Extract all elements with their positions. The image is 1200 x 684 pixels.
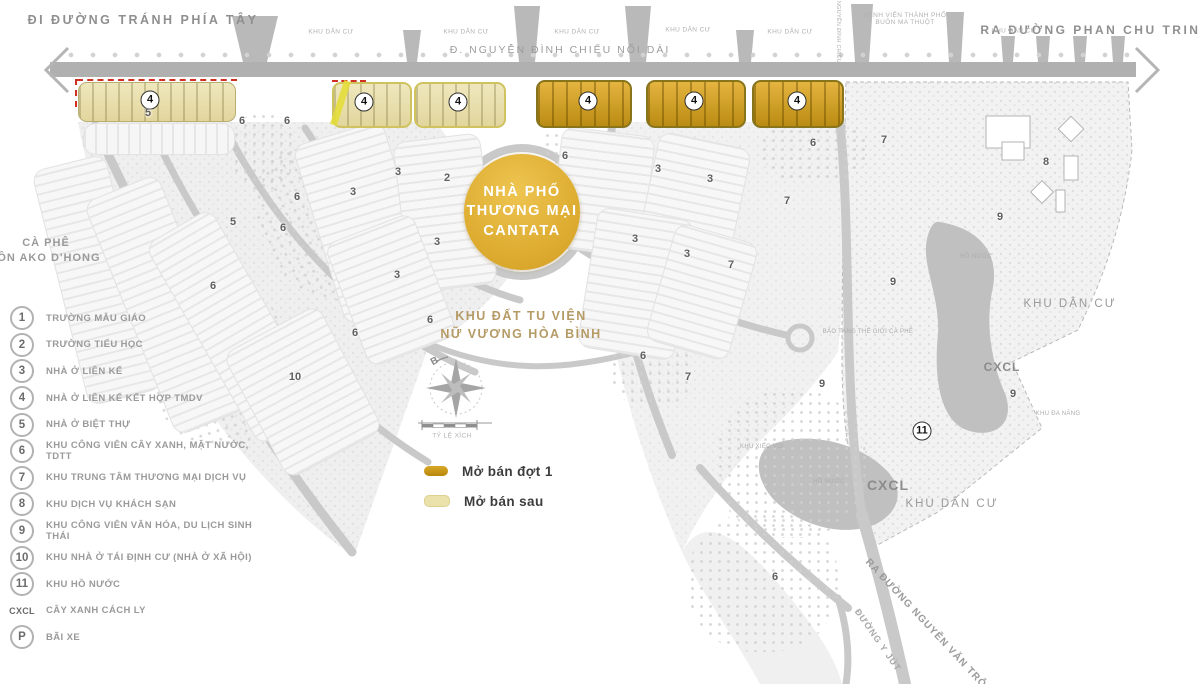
scale-bar	[418, 420, 492, 430]
legend-label: NHÀ Ở LIÊN KẾ	[46, 366, 123, 377]
residential-area-label: KHU DÂN CƯ	[443, 29, 488, 36]
zone-number-6: 6	[284, 115, 290, 127]
legend-label: KHU NHÀ Ở TÁI ĐỊNH CƯ (NHÀ Ở XÃ HỘI)	[46, 552, 252, 563]
zone-number-8: 8	[1043, 156, 1049, 168]
master-plan-map: 4444441156666782333367956333793666671099…	[0, 0, 1200, 684]
project-name-line2: THƯƠNG MẠI	[466, 202, 577, 222]
road-label-west: ĐI ĐƯỜNG TRÁNH PHÍA TÂY	[28, 13, 259, 27]
zone-number-11: 11	[913, 422, 932, 441]
legend-label: NHÀ Ở LIÊN KẾ KẾT HỢP TMDV	[46, 393, 203, 404]
legend-item-6: 6KHU CÔNG VIÊN CÂY XANH, MẶT NƯỚC, TDTT	[10, 438, 270, 465]
hospital-label-line1: BỆNH VIỆN THÀNH PHỐ	[864, 12, 947, 19]
legend-item-9: 9KHU CÔNG VIÊN VĂN HÓA, DU LỊCH SINH THÁ…	[10, 518, 270, 545]
zone-number-3: 3	[394, 269, 400, 281]
legend-badge-CXCL: CXCL	[10, 601, 34, 621]
hospital-label-line2: BUÔN MA THUỘT	[864, 19, 947, 26]
tree-cluster	[688, 512, 838, 652]
legend-item-7: 7KHU TRUNG TÂM THƯƠNG MẠI DỊCH VỤ	[10, 465, 270, 492]
phase2-swatch	[424, 495, 450, 507]
zone-number-3: 3	[350, 186, 356, 198]
yellow-marker	[330, 80, 351, 126]
convent-label-line2: NỮ VƯƠNG HÒA BÌNH	[440, 327, 601, 341]
zone-number-3: 3	[684, 248, 690, 260]
zone-number-7: 7	[881, 134, 887, 146]
legend-item-1: 1TRƯỜNG MẪU GIÁO	[10, 305, 270, 332]
legend-label: TRƯỜNG TIỂU HỌC	[46, 339, 143, 350]
zone-number-3: 3	[395, 166, 401, 178]
legend-label: NHÀ Ở BIỆT THỰ	[46, 419, 130, 430]
legend-label: KHU TRUNG TÂM THƯƠNG MẠI DỊCH VỤ	[46, 472, 246, 483]
zone-number-4: 4	[685, 92, 704, 111]
zone-number-7: 7	[784, 195, 790, 207]
east-arrow-icon	[1136, 48, 1158, 92]
legend-label: TRƯỜNG MẪU GIÁO	[46, 313, 146, 324]
scale-caption: TỶ LỆ XÍCH	[432, 433, 471, 440]
phase1-swatch	[424, 466, 448, 476]
legend-badge-1: 1	[10, 306, 34, 330]
lake-label: HỒ NƯỚC	[813, 479, 845, 485]
zone-number-6: 6	[562, 150, 568, 162]
project-circle: NHÀ PHỐ THƯƠNG MẠI CANTATA	[464, 154, 580, 270]
legend-item-10: 10KHU NHÀ Ở TÁI ĐỊNH CƯ (NHÀ Ở XÃ HỘI)	[10, 544, 270, 571]
legend-badge-10: 10	[10, 546, 34, 570]
legend-item-4: 4NHÀ Ở LIÊN KẾ KẾT HỢP TMDV	[10, 385, 270, 412]
zone-number-9: 9	[890, 276, 896, 288]
legend-item-CXCL: CXCLCÂY XANH CÁCH LY	[10, 598, 270, 625]
zone-number-6: 6	[280, 222, 286, 234]
legend-badge-2: 2	[10, 333, 34, 357]
zone-number-2: 2	[444, 172, 450, 184]
legend-badge-8: 8	[10, 492, 34, 516]
legend-item-8: 8KHU DỊCH VỤ KHÁCH SẠN	[10, 491, 270, 518]
legend-badge-5: 5	[10, 413, 34, 437]
legend-label: BÃI XE	[46, 632, 80, 643]
boundary-dash-red	[77, 79, 237, 81]
legend-item-3: 3NHÀ Ở LIÊN KẾ	[10, 358, 270, 385]
zone-number-4: 4	[355, 93, 374, 112]
legend-label: KHU DỊCH VỤ KHÁCH SẠN	[46, 499, 176, 510]
legend-item-5: 5NHÀ Ở BIỆT THỰ	[10, 411, 270, 438]
legend-label: CÂY XANH CÁCH LY	[46, 605, 146, 616]
zone-number-6: 6	[640, 350, 646, 362]
legend-badge-9: 9	[10, 519, 34, 543]
zone-number-9: 9	[1010, 388, 1016, 400]
residential-block	[84, 124, 234, 154]
cxcl-label: CXCL	[984, 360, 1021, 374]
zone-number-9: 9	[819, 378, 825, 390]
zone-number-4: 4	[579, 92, 598, 111]
legend-item-11: 11KHU HỒ NƯỚC	[10, 571, 270, 598]
legend-badge-P: P	[10, 625, 34, 649]
zone-number-6: 6	[294, 191, 300, 203]
zone-number-3: 3	[655, 163, 661, 175]
road-label-main: Đ. NGUYỄN ĐÌNH CHIỂU NỐI DÀI	[450, 44, 671, 56]
zone-number-5: 5	[230, 216, 236, 228]
khu-dan-cu-right: KHU DÂN CƯ	[1023, 298, 1116, 310]
legend-badge-3: 3	[10, 359, 34, 383]
lake-label: HỒ NƯỚC	[960, 254, 992, 260]
zone-number-4: 4	[788, 92, 807, 111]
legend-badge-4: 4	[10, 386, 34, 410]
project-name-line3: CANTATA	[483, 222, 560, 242]
residential-area-label: KHU DÂN CƯ	[767, 29, 812, 36]
multipurpose-label: KHU ĐA NĂNG	[1036, 411, 1081, 417]
zone-number-6: 6	[427, 314, 433, 326]
khu-dan-cu-bottom: KHU DÂN CƯ	[905, 498, 998, 510]
residential-area-label: KHU DÂN CƯ	[665, 27, 710, 34]
boundary-dash-red	[75, 79, 77, 107]
legend-label: KHU CÔNG VIÊN VĂN HÓA, DU LỊCH SINH THÁI	[46, 520, 270, 542]
convent-label-line1: KHU ĐẤT TU VIỆN	[455, 309, 587, 323]
zone-number-4: 4	[449, 93, 468, 112]
cafe-label-line1: CÀ PHÊ	[22, 237, 70, 249]
project-name-line1: NHÀ PHỐ	[483, 183, 560, 203]
zone-number-10: 10	[289, 371, 301, 383]
elephant-circus-label: KHU XIẾC VOI	[740, 444, 784, 450]
legend-item-P: PBÃI XE	[10, 624, 270, 651]
cxcl-label: CXCL	[867, 477, 909, 493]
zone-number-6: 6	[352, 327, 358, 339]
legend-label: KHU CÔNG VIÊN CÂY XANH, MẶT NƯỚC, TDTT	[46, 440, 270, 462]
legend-item-2: 2TRƯỜNG TIỂU HỌC	[10, 332, 270, 359]
zone-number-6: 6	[810, 137, 816, 149]
coffee-museum-label: BẢO TÀNG THẾ GIỚI CÀ PHÊ	[823, 329, 913, 335]
zone-number-6: 6	[772, 571, 778, 583]
zone-number-3: 3	[707, 173, 713, 185]
zone-number-6: 6	[239, 115, 245, 127]
zone-number-6: 6	[210, 280, 216, 292]
legend-badge-11: 11	[10, 572, 34, 596]
legend-badge-7: 7	[10, 466, 34, 490]
residential-area-label: KHU DÂN CƯ	[991, 28, 1036, 35]
residential-area-label: KHU DÂN CƯ	[308, 29, 353, 36]
zone-number-3: 3	[434, 236, 440, 248]
road-label-vertical: Đ. NGUYỄN ĐÌNH CHIỂU	[835, 0, 841, 63]
zone-number-7: 7	[685, 371, 691, 383]
legend-label: KHU HỒ NƯỚC	[46, 579, 120, 590]
legend-badge-6: 6	[10, 439, 34, 463]
residential-area-label: KHU DÂN CƯ	[554, 29, 599, 36]
phase1-label: Mở bán đợt 1	[462, 464, 553, 479]
phase2-label: Mở bán sau	[464, 494, 544, 509]
sale-phase1-row: Mở bán đợt 1	[424, 456, 553, 486]
legend-list: 1TRƯỜNG MẪU GIÁO2TRƯỜNG TIỂU HỌC3NHÀ Ở L…	[10, 305, 270, 651]
zone-number-3: 3	[632, 233, 638, 245]
hospital-label: BỆNH VIỆN THÀNH PHỐ BUÔN MA THUỘT	[864, 12, 947, 26]
sale-phase-legend: Mở bán đợt 1 Mở bán sau	[424, 456, 553, 516]
sale-phase2-row: Mở bán sau	[424, 486, 553, 516]
zone-number-7: 7	[728, 259, 734, 271]
cafe-label-line2: BUÔN AKO D'HONG	[0, 252, 101, 264]
zone-number-9: 9	[997, 211, 1003, 223]
zone-number-5: 5	[145, 107, 151, 119]
